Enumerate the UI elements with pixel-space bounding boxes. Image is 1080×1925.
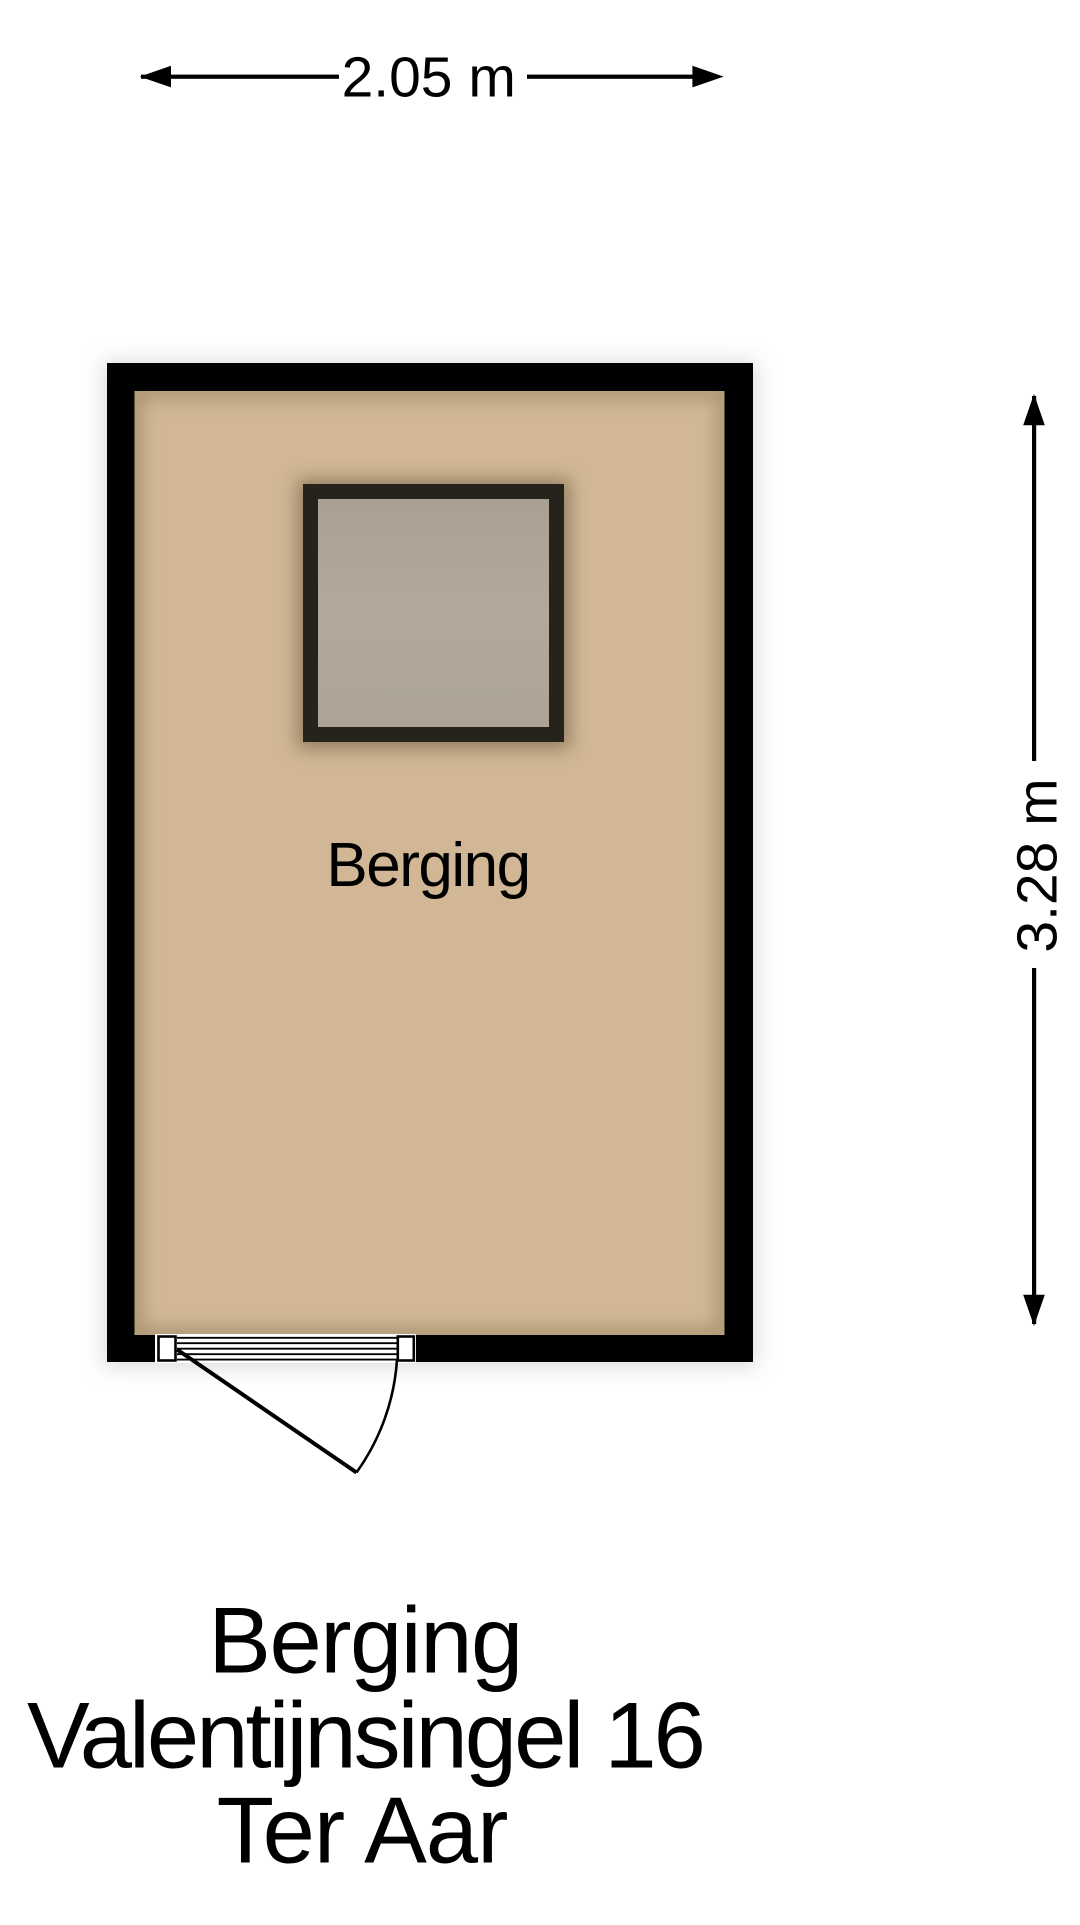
svg-text:Berging: Berging — [208, 1588, 522, 1693]
svg-text:Ter Aar: Ter Aar — [217, 1778, 508, 1883]
svg-text:2.05 m: 2.05 m — [342, 45, 516, 109]
svg-text:3.28 m: 3.28 m — [1006, 778, 1070, 952]
svg-text:Valentijnsingel 16: Valentijnsingel 16 — [27, 1683, 703, 1788]
svg-text:Berging: Berging — [326, 831, 529, 900]
